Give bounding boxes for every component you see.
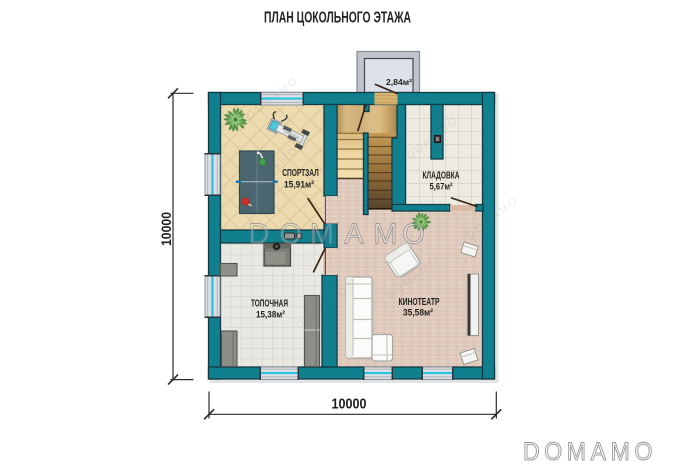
svg-text:КЛАДОВКА: КЛАДОВКА [423,171,460,182]
svg-text:15,38м²: 15,38м² [256,310,285,321]
svg-text:O: O [279,219,302,251]
svg-text:M: M [373,219,397,251]
svg-text:15,91м²: 15,91м² [284,180,314,191]
svg-text:DOMAMO: DOMAMO [523,438,657,466]
svg-text:2,84м²: 2,84м² [386,78,412,87]
svg-text:A: A [344,219,364,251]
svg-text:10000: 10000 [159,212,174,246]
svg-text:D: D [249,219,270,251]
svg-text:M: M [310,219,334,251]
svg-text:ТОПОЧНАЯ: ТОПОЧНАЯ [251,299,288,310]
svg-text:СПОРТЗАЛ: СПОРТЗАЛ [282,168,319,179]
svg-text:КИНОТЕАТР: КИНОТЕАТР [399,297,440,308]
svg-text:10000: 10000 [332,397,367,413]
svg-text:O: O [402,219,425,251]
svg-text:35,58м²: 35,58м² [403,308,433,319]
svg-text:ПЛАН ЦОКОЛЬНОГО ЭТАЖА: ПЛАН ЦОКОЛЬНОГО ЭТАЖА [264,10,411,27]
svg-text:5,67м²: 5,67м² [430,182,453,193]
